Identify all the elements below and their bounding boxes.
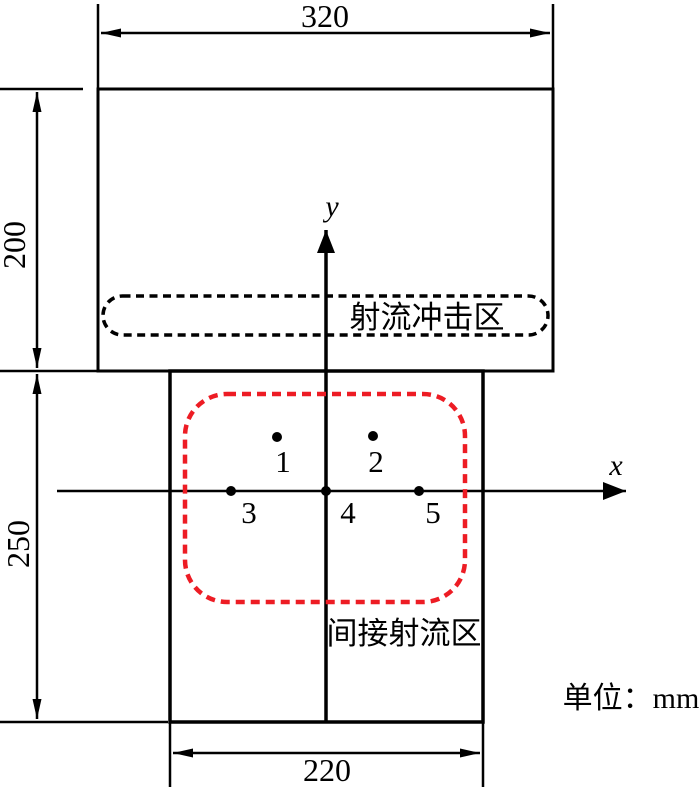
dim-label-220: 220 (303, 752, 351, 788)
point-label-1: 1 (275, 444, 291, 479)
point-label-3: 3 (241, 495, 257, 530)
y-axis-label: y (322, 190, 339, 223)
units-note: 单位：mm (563, 682, 700, 715)
measurement-point-1 (272, 432, 282, 442)
dim-label-320: 320 (301, 0, 349, 34)
point-label-4: 4 (340, 495, 356, 530)
engineering-diagram: 320 200 250 220 射流冲击区 间接射流区 y x 1 2 3 4 … (0, 0, 700, 789)
jet-impact-zone-label: 射流冲击区 (350, 300, 505, 335)
measurement-point-2 (368, 431, 378, 441)
measurement-point-5 (414, 486, 424, 496)
x-axis-label: x (608, 449, 623, 482)
diagram-canvas: 320 200 250 220 射流冲击区 间接射流区 y x 1 2 3 4 … (0, 0, 700, 789)
point-label-5: 5 (425, 495, 441, 530)
measurement-point-3 (226, 486, 236, 496)
indirect-jet-zone-label: 间接射流区 (327, 616, 482, 651)
point-label-2: 2 (368, 444, 384, 479)
dim-label-200: 200 (0, 221, 32, 269)
dim-label-250: 250 (0, 520, 36, 568)
measurement-point-4 (321, 486, 331, 496)
